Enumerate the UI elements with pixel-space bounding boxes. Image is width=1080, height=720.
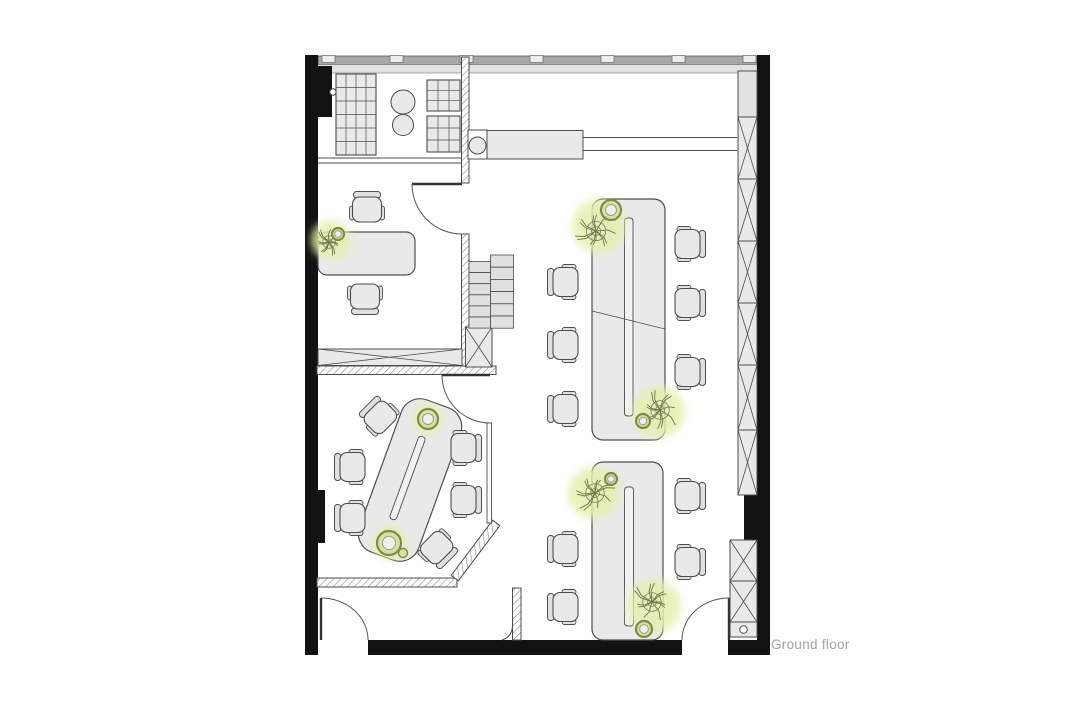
plant-pot-inner	[335, 231, 342, 238]
chair	[451, 431, 482, 466]
chair-seat	[553, 593, 578, 622]
chair-seat	[353, 197, 382, 222]
wall-left	[305, 55, 318, 655]
counter	[487, 131, 583, 160]
door-entry-right-swing	[682, 598, 729, 640]
x-boxes	[318, 327, 492, 367]
chair	[348, 284, 383, 315]
plant-pot-inner	[640, 625, 649, 634]
wall-entry-stub-hatch	[513, 588, 522, 640]
stair-tread	[469, 273, 491, 284]
chair	[548, 590, 579, 625]
plant-pot-inner	[382, 536, 395, 549]
floor-plan	[0, 0, 1080, 720]
wall-bottom-right	[728, 640, 770, 655]
counter-basin	[469, 137, 486, 154]
plant-table1-top	[572, 199, 626, 253]
plant-pot-inner	[606, 205, 617, 216]
lattice-cap	[738, 71, 757, 117]
chair-seat	[675, 482, 700, 511]
stair-tread	[491, 316, 514, 328]
kitchen-stool-2	[393, 115, 414, 136]
chair-seat	[553, 268, 578, 297]
window-mullion	[390, 56, 403, 63]
plant-meeting-top	[413, 404, 443, 434]
plant-pot-inner	[639, 417, 647, 425]
chair	[548, 392, 579, 427]
plant-table1-bottom	[633, 386, 685, 438]
chair	[548, 532, 579, 567]
stair-tread	[469, 284, 491, 295]
chair	[675, 286, 706, 321]
floor-plan-canvas: Ground floor	[0, 0, 1080, 720]
wall-kitchen-partition-hatch	[462, 57, 470, 183]
chair	[335, 450, 366, 485]
chair-seat	[361, 398, 399, 436]
chair	[675, 479, 706, 514]
wall-right	[757, 55, 770, 655]
window-band	[318, 56, 757, 74]
stair-tread	[469, 262, 491, 273]
chair-seat	[351, 284, 380, 309]
plant-table2-top	[568, 467, 620, 519]
chair	[548, 265, 579, 300]
chair-seat	[675, 548, 700, 577]
shelf-table-1	[427, 80, 460, 111]
plant-office-desk	[311, 220, 351, 260]
plant-pot-inner	[423, 414, 434, 425]
pier-left	[305, 490, 325, 543]
stair-tread	[469, 295, 491, 306]
wall-bottom-main	[368, 640, 682, 655]
plant-pot-small	[399, 549, 408, 558]
chair-seat	[340, 504, 365, 533]
chair	[451, 483, 482, 518]
chair	[675, 227, 706, 262]
door-kitchen-swing	[412, 184, 462, 234]
chair-seat	[451, 434, 476, 463]
window-mullion	[743, 56, 756, 63]
chair	[548, 328, 579, 363]
stair-tread	[491, 267, 514, 279]
lattice-strips	[730, 117, 757, 622]
stair-tread	[491, 304, 514, 316]
chair-seat	[675, 289, 700, 318]
window-mullion	[601, 56, 614, 63]
wall-meeting-chamfer-hatch	[451, 520, 500, 581]
window-mullion	[530, 56, 543, 63]
chair-seat	[553, 395, 578, 424]
glass-partition	[487, 423, 492, 523]
thin-walls	[487, 423, 492, 523]
wall-meeting-bottom-hatch	[317, 578, 457, 587]
stub-foot-curve	[502, 626, 513, 640]
door-entry-left-swing	[321, 598, 368, 640]
column-fitting	[330, 89, 336, 95]
drawer-knob	[740, 626, 748, 634]
window-mullion	[672, 56, 685, 63]
chair-seat	[675, 358, 700, 387]
table1-tray	[625, 218, 634, 416]
stair-tread	[491, 255, 514, 267]
grid-units	[336, 74, 460, 155]
stair-tread	[491, 279, 514, 291]
chair-seat	[553, 535, 578, 564]
pier-right	[744, 495, 770, 540]
chair	[350, 192, 385, 223]
window-mullion	[322, 56, 335, 63]
kitchen-stool-1	[391, 90, 415, 114]
chair-seat	[451, 486, 476, 515]
stair-tread	[469, 317, 491, 328]
chair	[335, 501, 366, 536]
window-band-inner	[318, 65, 757, 74]
plant-pot-inner	[608, 476, 615, 483]
chair-seat	[553, 331, 578, 360]
chair	[675, 545, 706, 580]
stair-tread	[469, 306, 491, 317]
floor-label: Ground floor	[771, 637, 850, 652]
chair-seat	[340, 453, 365, 482]
stair-tread	[491, 292, 514, 304]
plant-table2-bottom	[627, 579, 681, 637]
chair-seat	[675, 230, 700, 259]
stairs	[469, 255, 514, 328]
shelf-table-2	[427, 116, 460, 152]
chair	[675, 355, 706, 390]
